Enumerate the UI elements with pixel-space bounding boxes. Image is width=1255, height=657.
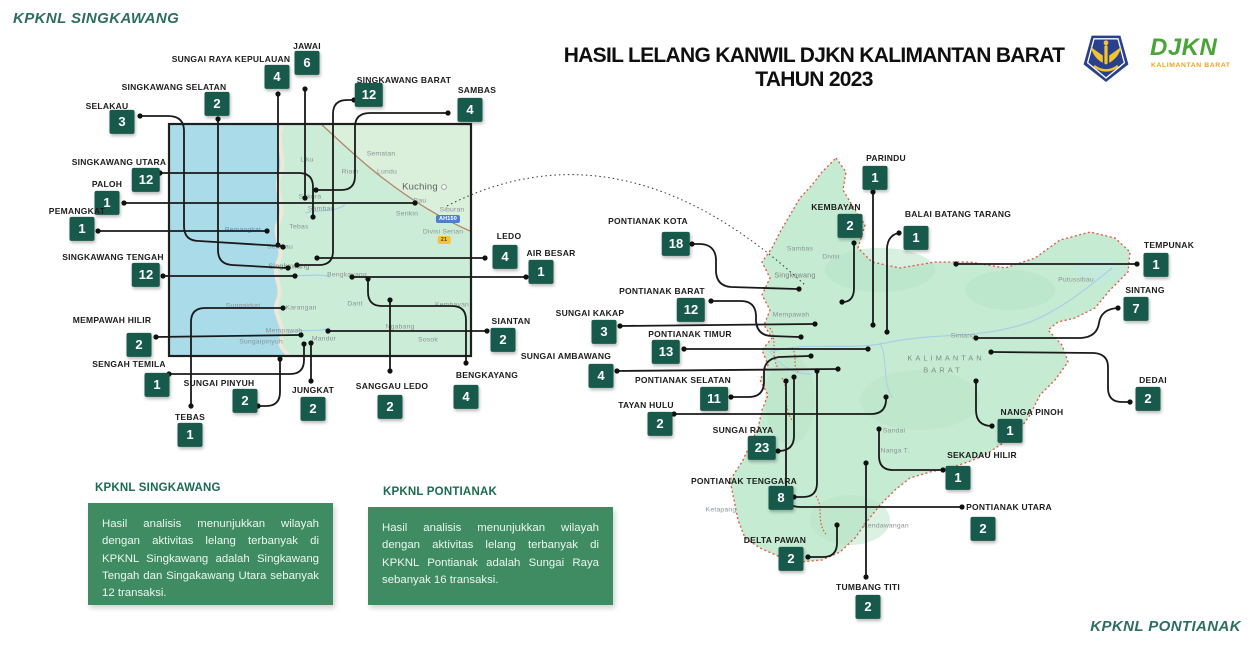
map-place-kalimantan: KALIMANTAN xyxy=(907,354,984,363)
marker-count-badge-singkawang-utara: 12 xyxy=(132,168,160,192)
connector-sungai-raya xyxy=(778,379,794,451)
marker-label-parindu: PARINDU xyxy=(866,153,906,163)
marker-label-singkawang-tengah: SINGKAWANG TENGAH xyxy=(62,252,164,262)
connector-dot xyxy=(310,214,315,219)
marker-label-sungai-raya: SUNGAI RAYA xyxy=(713,425,774,435)
connector-sungai-pinyuh xyxy=(258,361,280,406)
marker-label-tebas: TEBAS xyxy=(175,412,205,422)
marker-label-air-besar: AIR BESAR xyxy=(526,248,575,258)
marker-count-badge-pontianak-barat: 12 xyxy=(677,298,705,322)
connector-dot xyxy=(896,230,901,235)
connector-dot xyxy=(351,97,356,102)
map-place-putussibau: Putussibau xyxy=(1058,277,1094,284)
left-map xyxy=(169,124,471,356)
connector-mempawah-hilir xyxy=(156,335,299,337)
map-place-pemangkat: Pemangkat xyxy=(225,227,261,234)
connector-tebas xyxy=(191,308,281,406)
connector-dot xyxy=(851,240,856,245)
marker-label-sekadau-hilir: SEKADAU HILIR xyxy=(947,450,1017,460)
marker-label-tumbang-titi: TUMBANG TITI xyxy=(836,582,900,592)
zoom-link-dotted-line xyxy=(447,175,806,286)
map-place-sandai: Sandai xyxy=(883,428,905,435)
connector-dot xyxy=(775,448,780,453)
connector-dot xyxy=(308,340,313,345)
djkn-logo-subtext: KALIMANTAN BARAT xyxy=(1151,62,1231,69)
map-place-liku: Liku xyxy=(300,157,313,164)
map-place-siburan: Siburan xyxy=(440,207,465,214)
connector-dot xyxy=(482,255,487,260)
marker-count-badge-tayan-hulu: 2 xyxy=(648,412,673,436)
connector-dot xyxy=(292,273,297,278)
right-map xyxy=(730,158,1130,562)
marker-label-sambas: SAMBAS xyxy=(458,85,496,95)
connector-dot xyxy=(865,346,870,351)
connector-selakau xyxy=(140,116,281,246)
connector-dot xyxy=(275,91,280,96)
connector-dot xyxy=(791,494,796,499)
marker-label-ledo: LEDO xyxy=(497,231,522,241)
connector-dot xyxy=(671,411,676,416)
connector-pontianak-kota xyxy=(692,244,797,289)
connector-dot xyxy=(1134,261,1139,266)
logo-group: DJKN KALIMANTAN BARAT xyxy=(1082,30,1242,86)
map-place-sematan: Sematan xyxy=(367,151,396,158)
marker-label-pontianak-utara: PONTIANAK UTARA xyxy=(966,502,1052,512)
connector-sekadau-hilir xyxy=(879,431,943,470)
connector-dot xyxy=(783,378,788,383)
kalbar-landmass xyxy=(730,158,1130,562)
marker-count-badge-singkawang-tengah: 12 xyxy=(132,263,160,287)
marker-count-badge-sungai-kakap: 3 xyxy=(592,320,617,344)
connector-singkawang-barat xyxy=(299,100,354,265)
marker-label-sengah-temila: SENGAH TEMILA xyxy=(92,359,166,369)
marker-count-badge-pontianak-kota: 18 xyxy=(662,232,690,256)
info-box-pontianak-title: KPKNL PONTIANAK xyxy=(383,486,497,498)
connector-dot xyxy=(188,403,193,408)
connector-sungai-ambawang xyxy=(617,369,836,371)
connector-dot xyxy=(614,368,619,373)
marker-count-badge-pontianak-utara: 2 xyxy=(971,517,996,541)
marker-count-badge-selakau: 3 xyxy=(110,110,135,134)
connector-dot xyxy=(313,187,318,192)
connector-dot xyxy=(728,394,733,399)
connector-dot xyxy=(308,378,313,383)
map-place-darit: Darit xyxy=(347,301,362,308)
connector-dot xyxy=(298,332,303,337)
marker-label-singkawang-selatan: SINGKAWANG SELATAN xyxy=(122,82,227,92)
marker-count-badge-parindu: 1 xyxy=(863,166,888,190)
marker-count-badge-nanga-pinoh: 1 xyxy=(998,419,1023,443)
map-place-singkawang: Singkawang xyxy=(268,262,309,271)
map-place-tebas: Tebas xyxy=(289,224,308,231)
marker-label-pontianak-barat: PONTIANAK BARAT xyxy=(619,286,705,296)
marker-count-badge-mempawah-hilir: 2 xyxy=(127,333,152,357)
connector-dot xyxy=(160,273,165,278)
corner-label-bottom-right: KPKNL PONTIANAK xyxy=(1090,618,1241,635)
connector-dot xyxy=(835,366,840,371)
marker-count-badge-balai-batang-tarang: 1 xyxy=(904,226,929,250)
map-place-sungaiduri: Sungaiduri xyxy=(226,303,261,310)
connector-dot xyxy=(215,116,220,121)
marker-count-badge-singkawang-barat: 12 xyxy=(355,83,383,107)
marker-count-badge-sungai-raya: 23 xyxy=(748,436,776,460)
connector-dot xyxy=(523,274,528,279)
connector-dot xyxy=(805,554,810,559)
map-place-serikin: Serikin xyxy=(396,211,418,218)
connector-dot xyxy=(798,334,803,339)
connector-dot xyxy=(412,200,417,205)
connector-sengah-temila xyxy=(169,346,304,374)
connector-dot xyxy=(617,323,622,328)
connector-dot xyxy=(689,241,694,246)
kemenkeu-logo-icon xyxy=(1082,32,1130,84)
info-box-pontianak-body: Hasil analisis menunjukkan wilayah denga… xyxy=(368,507,613,605)
connector-dot xyxy=(349,274,354,279)
connector-singkawang-selatan xyxy=(218,119,286,268)
map-place-divisi-serian: Divisi Serian xyxy=(423,229,463,236)
connector-nanga-pinoh xyxy=(976,383,992,426)
map-place-kendawangan: Kendawangan xyxy=(863,523,909,530)
connector-dot xyxy=(325,328,330,333)
marker-label-singkawang-utara: SINGKAWANG UTARA xyxy=(72,157,167,167)
connector-dot xyxy=(870,322,875,327)
connector-dot xyxy=(95,228,100,233)
marker-label-mempawah-hilir: MEMPAWAH HILIR xyxy=(73,315,151,325)
map-place-sosok: Sosok xyxy=(418,337,438,344)
connector-dot xyxy=(863,460,868,465)
connector-dot xyxy=(989,423,994,428)
marker-count-badge-sanggau-ledo: 2 xyxy=(378,395,403,419)
map-place-sambas: Sambas xyxy=(308,206,334,213)
marker-label-tayan-hulu: TAYAN HULU xyxy=(618,400,674,410)
connector-dot xyxy=(137,113,142,118)
connector-dot xyxy=(839,299,844,304)
map-place-selakau: Selakau xyxy=(267,244,293,251)
map-place-bau: Bau xyxy=(414,198,427,205)
connector-tayan-hulu xyxy=(674,399,886,414)
marker-count-badge-pontianak-selatan: 11 xyxy=(700,387,728,411)
connector-dot xyxy=(365,276,370,281)
connector-sambas xyxy=(318,113,448,190)
map-place-mempawah: Mempawah xyxy=(266,328,303,335)
connector-dot xyxy=(387,368,392,373)
connector-pontianak-tenggara xyxy=(794,373,817,497)
connector-dot xyxy=(294,262,299,267)
connector-dot xyxy=(876,426,881,431)
map-place-nanga-t-: Nanga T. xyxy=(881,448,910,455)
connector-dot xyxy=(791,374,796,379)
marker-label-jawai: JAWAI xyxy=(293,41,321,51)
map-place-karangan: Karangan xyxy=(285,305,316,312)
marker-count-badge-paloh: 1 xyxy=(95,191,120,215)
connector-dedai xyxy=(993,352,1130,402)
connector-dot xyxy=(959,504,964,509)
marker-count-badge-ledo: 4 xyxy=(493,245,518,269)
connector-dot xyxy=(973,335,978,340)
marker-count-badge-sungai-raya-kepulauan: 4 xyxy=(265,65,290,89)
map-place-sungaipinyuh: Sungaipinyuh xyxy=(239,339,283,346)
page-title: HASIL LELANG KANWIL DJKN KALIMANTAN BARA… xyxy=(540,44,1088,92)
connector-dot xyxy=(387,297,392,302)
marker-count-badge-jungkat: 2 xyxy=(301,397,326,421)
marker-count-badge-sambas: 4 xyxy=(458,98,483,122)
connector-dot xyxy=(301,341,306,346)
connector-dot xyxy=(157,170,162,175)
map-place-bengkayang: Bengkayang xyxy=(327,272,367,279)
marker-label-sungai-raya-kepulauan: SUNGAI RAYA KEPULAUAN xyxy=(172,54,291,64)
connector-dot xyxy=(988,349,993,354)
connector-dot xyxy=(1115,305,1120,310)
marker-count-badge-dedai: 2 xyxy=(1136,387,1161,411)
map-place-sintang: Sintang xyxy=(951,333,975,340)
map-place-mempawah: Mempawah xyxy=(773,312,810,319)
connector-dot xyxy=(708,298,713,303)
marker-count-badge-jawai: 6 xyxy=(295,51,320,75)
marker-label-selakau: SELAKAU xyxy=(86,101,129,111)
map-place-barat: BARAT xyxy=(923,366,962,375)
connector-dot xyxy=(264,228,269,233)
connector-dot xyxy=(314,255,319,260)
marker-count-badge-singkawang-selatan: 2 xyxy=(205,92,230,116)
marker-label-jungkat: JUNGKAT xyxy=(292,385,334,395)
map-place-riam: Riam xyxy=(342,169,359,176)
connector-dot xyxy=(814,368,819,373)
marker-label-pontianak-selatan: PONTIANAK SELATAN xyxy=(635,375,731,385)
connector-dot xyxy=(463,360,468,365)
djkn-logo-text: DJKN xyxy=(1150,36,1217,60)
connector-bengkayang xyxy=(368,281,466,363)
marker-count-badge-siantan: 2 xyxy=(491,328,516,352)
marker-label-pontianak-kota: PONTIANAK KOTA xyxy=(608,216,688,226)
connector-dot xyxy=(834,522,839,527)
marker-label-paloh: PALOH xyxy=(92,179,122,189)
marker-count-badge-sengah-temila: 1 xyxy=(145,373,170,397)
marker-label-balai-batang-tarang: BALAI BATANG TARANG xyxy=(905,209,1011,219)
connector-sungai-kakap xyxy=(620,324,813,326)
marker-count-badge-tempunak: 1 xyxy=(1144,253,1169,277)
map-place-lundu: Lundu xyxy=(377,169,397,176)
map-place-ngabang: Ngabang xyxy=(386,324,415,331)
marker-label-nanga-pinoh: NANGA PINOH xyxy=(1001,407,1064,417)
connector-dot xyxy=(681,346,686,351)
connector-dot xyxy=(275,242,280,247)
corner-label-top-left: KPKNL SINGKAWANG xyxy=(13,10,179,27)
marker-label-sanggau-ledo: SANGGAU LEDO xyxy=(356,381,428,391)
marker-label-dedai: DEDAI xyxy=(1139,375,1167,385)
connector-delta-pawan xyxy=(808,527,837,557)
marker-label-siantan: SIANTAN xyxy=(492,316,531,326)
connector-dot xyxy=(940,467,945,472)
connector-pontianak-utara xyxy=(786,383,962,507)
connector-dot xyxy=(302,86,307,91)
connector-dot xyxy=(302,195,307,200)
marker-label-sungai-pinyuh: SUNGAI PINYUH xyxy=(184,378,255,388)
map-place-kembayan: Kembayan xyxy=(435,302,469,309)
connector-dot xyxy=(863,574,868,579)
marker-count-badge-sungai-pinyuh: 2 xyxy=(233,389,258,413)
marker-count-badge-tebas: 1 xyxy=(178,423,203,447)
connector-dot xyxy=(280,244,285,249)
connector-dot xyxy=(280,305,285,310)
map-place-ah150: AH150 xyxy=(436,215,460,223)
connector-dot xyxy=(870,189,875,194)
connector-dot xyxy=(121,200,126,205)
connector-dot xyxy=(484,328,489,333)
info-box-singkawang-body: Hasil analisis menunjukkan wilayah denga… xyxy=(88,503,333,605)
connector-balai-batang-tarang xyxy=(887,233,899,330)
info-box-singkawang-title: KPKNL SINGKAWANG xyxy=(95,482,221,494)
marker-label-singkawang-barat: SINGKAWANG BARAT xyxy=(357,75,452,85)
marker-label-kembayan: KEMBAYAN xyxy=(811,202,861,212)
connector-dot xyxy=(812,321,817,326)
marker-count-badge-pontianak-timur: 13 xyxy=(652,340,680,364)
connector-dot xyxy=(883,394,888,399)
connector-dot xyxy=(796,286,801,291)
marker-label-sintang: SINTANG xyxy=(1125,285,1164,295)
marker-count-badge-sintang: 7 xyxy=(1124,297,1149,321)
map-place-sambas: Sambas xyxy=(787,246,813,253)
connector-sintang xyxy=(978,308,1118,338)
connector-dot xyxy=(445,110,450,115)
marker-label-pontianak-timur: PONTIANAK TIMUR xyxy=(648,329,732,339)
marker-label-pontianak-tenggara: PONTIANAK TENGGARA xyxy=(691,476,797,486)
map-place-21: 21 xyxy=(438,236,451,244)
connector-dot xyxy=(1127,399,1132,404)
map-place-mandor: Mandor xyxy=(312,336,336,343)
marker-count-badge-delta-pawan: 2 xyxy=(779,547,804,571)
marker-count-badge-sekadau-hilir: 1 xyxy=(946,466,971,490)
connector-pontianak-selatan xyxy=(731,356,809,397)
map-place-sekura: Sekura xyxy=(299,194,322,201)
connector-dot xyxy=(973,378,978,383)
marker-count-badge-air-besar: 1 xyxy=(529,260,554,284)
map-place-divisi: Divisi xyxy=(822,254,839,261)
connector-dot xyxy=(808,353,813,358)
connector-dot xyxy=(166,371,171,376)
marker-count-badge-sungai-ambawang: 4 xyxy=(589,364,614,388)
marker-label-delta-pawan: DELTA PAWAN xyxy=(744,535,806,545)
map-place-ketapang: Ketapang xyxy=(706,507,737,514)
map-place-kuching: Kuching xyxy=(402,182,438,193)
connector-dot xyxy=(953,261,958,266)
connector-kembayan xyxy=(844,243,854,302)
marker-count-badge-kembayan: 2 xyxy=(838,214,863,238)
marker-count-badge-pontianak-tenggara: 8 xyxy=(769,486,794,510)
connector-dot xyxy=(285,265,290,270)
connector-pontianak-barat xyxy=(711,301,799,337)
map-place-singkawang: Singkawang xyxy=(774,271,815,280)
marker-label-tempunak: TEMPUNAK xyxy=(1144,240,1194,250)
infographic-canvas: LikuSematanLunduRiamKuchingBauSiburanSer… xyxy=(0,0,1255,657)
marker-label-sungai-kakap: SUNGAI KAKAP xyxy=(556,308,625,318)
marker-label-pemangkat: PEMANGKAT xyxy=(49,206,105,216)
marker-label-bengkayang: BENGKAYANG xyxy=(456,370,518,380)
marker-count-badge-pemangkat: 1 xyxy=(70,217,95,241)
connector-dot xyxy=(277,356,282,361)
connector-dot xyxy=(884,329,889,334)
connector-singkawang-utara xyxy=(160,173,313,215)
connector-dot xyxy=(255,403,260,408)
connector-dot xyxy=(153,334,158,339)
marker-count-badge-bengkayang: 4 xyxy=(454,385,479,409)
marker-count-badge-tumbang-titi: 2 xyxy=(856,595,881,619)
marker-label-sungai-ambawang: SUNGAI AMBAWANG xyxy=(521,351,611,361)
